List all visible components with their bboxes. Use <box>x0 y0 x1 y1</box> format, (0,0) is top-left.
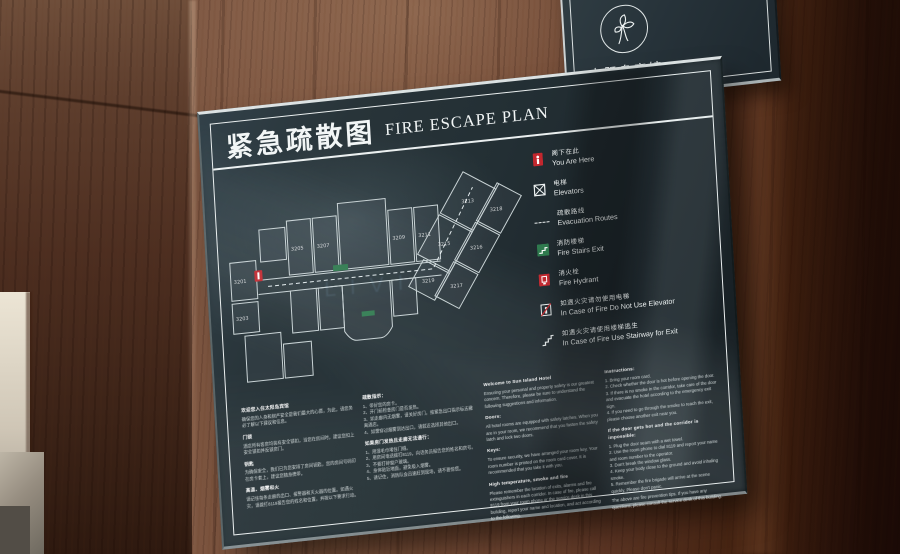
fire-escape-plan-sign: 紧急疏散图 FIRE ESCAPE PLAN <box>197 56 747 550</box>
en2-t1: 1. Bring your room card. 2. Check whethe… <box>605 366 720 423</box>
no-elevator-icon <box>539 302 553 316</box>
background-dark-object <box>0 506 30 554</box>
sign-frame: 紧急疏散图 FIRE ESCAPE PLAN <box>210 70 735 535</box>
legend-evacuation-routes: 疏散路线 Evacuation Routes <box>534 193 722 230</box>
legend: 阁下在此 You Are Here 电梯 Elevators 疏散路线 Evac… <box>531 133 730 363</box>
legend-fire-hydrant: 消火栓 Fire Hydrant <box>537 253 725 290</box>
info-column-en-1: Welcome to Sun Island Hotel Ensuring you… <box>483 365 602 501</box>
legend-fire-stairs: 消防楼梯 Fire Stairs Exit <box>536 223 724 260</box>
en2-t2: 1. Plug the door seam with a wet towel. … <box>609 432 724 495</box>
you-are-here-marker <box>254 270 263 282</box>
sign-title-cn: 紧急疏散图 <box>225 110 376 165</box>
you-are-here-icon <box>531 152 545 166</box>
flower-emblem-icon <box>605 9 643 49</box>
dashed-route-icon <box>534 212 550 227</box>
fire-hydrant-icon <box>537 272 551 286</box>
legend-elevators: 电梯 Elevators <box>532 163 720 200</box>
info-column-cn-2: 疏散指示： 1、带好您的房卡。 2、开门前检查房门是否发热。 3、如走廊内无烟雾… <box>362 378 481 514</box>
sign-title-en: FIRE ESCAPE PLAN <box>384 99 549 140</box>
elevator-icon <box>532 182 546 196</box>
legend-en: Elevators <box>554 185 584 197</box>
legend-use-stairway: 如遇火灾请使用楼梯逃生 In Case of Fire Use Stairway… <box>541 313 729 350</box>
legend-no-elevator: 如遇火灾请勿使用电梯 In Case of Fire Do Not Use El… <box>539 283 727 320</box>
wood-dark-edge <box>770 0 900 554</box>
floor-plan: 3201 3203 3205 3207 3209 3211 3213 3215 … <box>222 148 533 392</box>
info-column-cn-1: 欢迎您入住太阳岛宾馆 确保您的人身和财产安全是我们最大的心愿，为此，请您务必了解… <box>241 391 360 527</box>
fire-stairs-icon <box>536 242 550 256</box>
legend-you-are-here: 阁下在此 You Are Here <box>531 133 719 170</box>
door-edge-highlight <box>189 0 196 554</box>
photo-scene: 太阳岛宾馆 SUN ISLAND HOTEL 紧急疏散图 FIRE ESCAPE… <box>0 0 900 554</box>
hotel-logo-circle <box>599 2 650 55</box>
info-column-en-2: Instructions: 1. Bring your room card. 2… <box>604 352 723 488</box>
stairway-icon <box>541 332 555 346</box>
